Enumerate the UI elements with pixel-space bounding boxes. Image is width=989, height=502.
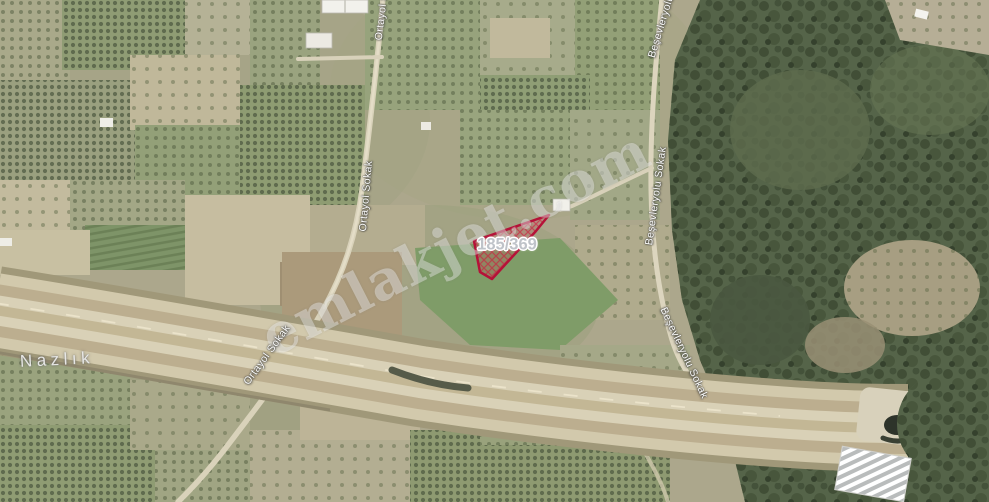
satellite-map-canvas[interactable]: emlakjet.com Ortayol Sokak Ortayol Sokak…	[0, 0, 989, 502]
parcel-number-label: 185/369	[477, 236, 537, 255]
district-label: Nazlık	[19, 348, 94, 372]
house-near-parcel	[553, 199, 570, 211]
